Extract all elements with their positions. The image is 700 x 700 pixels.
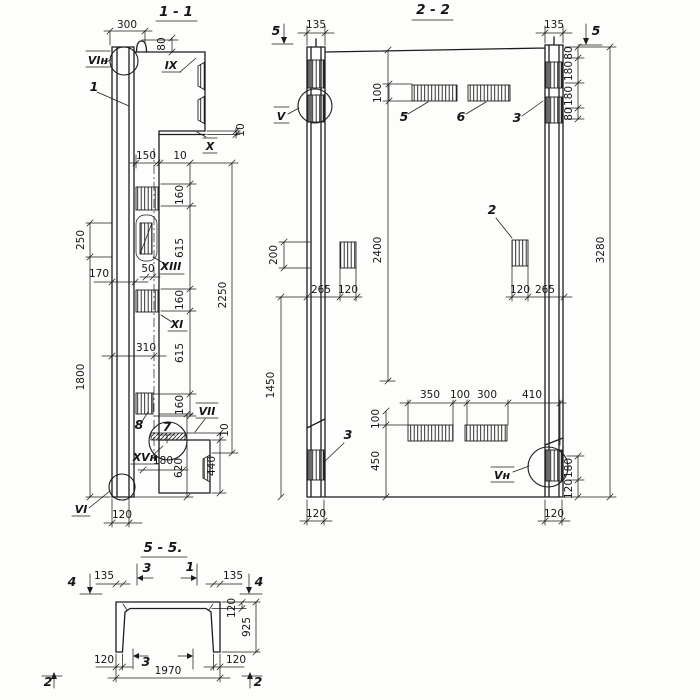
section-1-1: 1 - 1 300 80 VIн IX 1 10 X 150 10 160 61… bbox=[72, 4, 247, 527]
dim-120-leg-right: 120 bbox=[226, 654, 246, 666]
dim-120-slab: 120 bbox=[226, 598, 238, 618]
cut-arrow-3-top bbox=[137, 575, 143, 581]
section-marker-5-left: 5 bbox=[272, 23, 281, 38]
part-label-7: 7 bbox=[163, 419, 172, 434]
dim-180-2: 180 bbox=[563, 86, 575, 106]
part-label-8: 8 bbox=[135, 417, 144, 432]
dim-120-bottom-right-chain: 120 bbox=[563, 479, 575, 499]
detail-label-ix: IX bbox=[165, 59, 178, 72]
cut-arrow-3-bottom bbox=[133, 653, 139, 659]
dim-3280: 3280 bbox=[595, 237, 607, 264]
section-arrow-5-right bbox=[583, 38, 589, 45]
cut-label-3-top: 3 bbox=[143, 560, 152, 575]
section-5-5-title: 5 - 5. bbox=[144, 540, 183, 556]
section-arrow-4-right bbox=[246, 587, 252, 594]
part-label-5: 5 bbox=[400, 109, 409, 124]
channel-outline-5-5 bbox=[116, 602, 220, 652]
dim-180-bottom-right: 180 bbox=[563, 458, 575, 478]
dim-1800: 1800 bbox=[75, 364, 87, 391]
dim-170: 170 bbox=[89, 268, 109, 280]
dim-120-leg-left: 120 bbox=[94, 654, 114, 666]
engineering-drawing: 1 - 1 300 80 VIн IX 1 10 X 150 10 160 61… bbox=[0, 0, 700, 700]
dim-80-1: 80 bbox=[563, 46, 575, 59]
cut-arrow-1-top bbox=[191, 575, 197, 581]
dim-925: 925 bbox=[241, 617, 253, 637]
dim-10-weld: 10 bbox=[219, 423, 231, 436]
cut-label-3-bottom: 3 bbox=[142, 654, 151, 669]
part-label-3-top: 3 bbox=[513, 110, 522, 125]
dim-1450: 1450 bbox=[265, 372, 277, 399]
section-marker-5-right: 5 bbox=[592, 23, 601, 38]
detail-label-v-n: Vн bbox=[494, 469, 511, 482]
dim-350: 350 bbox=[420, 389, 440, 401]
dim-80: 80 bbox=[156, 37, 168, 50]
dim-100-mid: 100 bbox=[450, 389, 470, 401]
dim-10-rib: 10 bbox=[173, 150, 186, 162]
section-arrow-2-right bbox=[247, 672, 253, 679]
dim-135-right: 135 bbox=[544, 19, 564, 31]
dim-615-2: 615 bbox=[174, 343, 186, 363]
detail-label-xiii: XIII bbox=[160, 260, 182, 273]
dim-310: 310 bbox=[136, 342, 156, 354]
section-arrow-5-left bbox=[281, 37, 287, 44]
part-label-1: 1 bbox=[90, 79, 99, 94]
dim-135-left: 135 bbox=[306, 19, 326, 31]
detail-label-x: X bbox=[205, 140, 215, 153]
dim-1970: 1970 bbox=[155, 665, 182, 677]
dim-50: 50 bbox=[141, 263, 154, 275]
dim-620: 620 bbox=[173, 458, 185, 478]
drawing-sheet: 1 - 1 300 80 VIн IX 1 10 X 150 10 160 61… bbox=[0, 0, 700, 700]
detail-label-vi: VI bbox=[75, 503, 88, 516]
section-marker-2-left: 2 bbox=[44, 674, 53, 689]
cut-arrow-bottom-right bbox=[187, 653, 193, 659]
dim-180: 180 bbox=[153, 455, 173, 467]
dimension-lines-1-1 bbox=[86, 28, 240, 527]
section-marker-2-right: 2 bbox=[254, 674, 263, 689]
dim-80-2: 80 bbox=[563, 107, 575, 120]
dim-120-bottom: 120 bbox=[112, 509, 132, 521]
dim-135-left: 135 bbox=[94, 570, 114, 582]
dim-120-under-left-column: 120 bbox=[306, 508, 326, 520]
dim-410: 410 bbox=[522, 389, 542, 401]
section-marker-4-right: 4 bbox=[254, 574, 264, 589]
dim-440: 440 bbox=[206, 456, 218, 476]
dim-265-left: 265 bbox=[311, 284, 331, 296]
section-2-2: 2 - 2 5 135 135 5 100 5 6 3 80 180 180 8… bbox=[265, 2, 616, 525]
dim-160-2: 160 bbox=[174, 290, 186, 310]
section-5-5: 5 - 5. 4 135 3 1 135 4 120 925 120 3 120… bbox=[42, 540, 263, 689]
dim-150: 150 bbox=[136, 150, 156, 162]
detail-label-v: V bbox=[277, 110, 287, 123]
section-2-2-title: 2 - 2 bbox=[416, 2, 450, 18]
section-marker-4-left: 4 bbox=[67, 574, 77, 589]
dim-160-1: 160 bbox=[174, 185, 186, 205]
dim-120-right: 120 bbox=[510, 284, 530, 296]
lifting-loop bbox=[137, 41, 147, 52]
dim-120-left: 120 bbox=[338, 284, 358, 296]
dim-2400: 2400 bbox=[372, 237, 384, 264]
part-label-2: 2 bbox=[488, 202, 497, 217]
detail-label-vi-n: VIн bbox=[88, 54, 109, 67]
dim-100-bottom-left: 100 bbox=[370, 409, 382, 429]
dim-250: 250 bbox=[75, 230, 87, 250]
dim-300: 300 bbox=[117, 19, 137, 31]
detail-label-xi: XI bbox=[170, 318, 184, 331]
dim-300: 300 bbox=[477, 389, 497, 401]
detail-label-vii: VII bbox=[199, 405, 216, 418]
part-label-3-bottom: 3 bbox=[344, 427, 353, 442]
dim-135-right: 135 bbox=[223, 570, 243, 582]
dim-2250: 2250 bbox=[217, 282, 229, 309]
weld-seam bbox=[151, 433, 185, 440]
part-label-6: 6 bbox=[457, 109, 466, 124]
dim-120-under-right-column: 120 bbox=[544, 508, 564, 520]
dim-265-right: 265 bbox=[535, 284, 555, 296]
cut-label-1-top: 1 bbox=[186, 559, 195, 574]
dim-450: 450 bbox=[370, 451, 382, 471]
dim-160-3: 160 bbox=[174, 395, 186, 415]
dim-200: 200 bbox=[268, 245, 280, 265]
detail-circle-vi bbox=[109, 474, 135, 500]
dim-10-plate: 10 bbox=[235, 123, 247, 136]
embedded-plates-2-2 bbox=[308, 60, 562, 481]
section-arrow-4-left bbox=[87, 587, 93, 594]
dim-180-1: 180 bbox=[563, 61, 575, 81]
dim-100-top: 100 bbox=[372, 83, 384, 103]
section-1-1-title: 1 - 1 bbox=[159, 4, 193, 20]
dim-615-1: 615 bbox=[174, 238, 186, 258]
